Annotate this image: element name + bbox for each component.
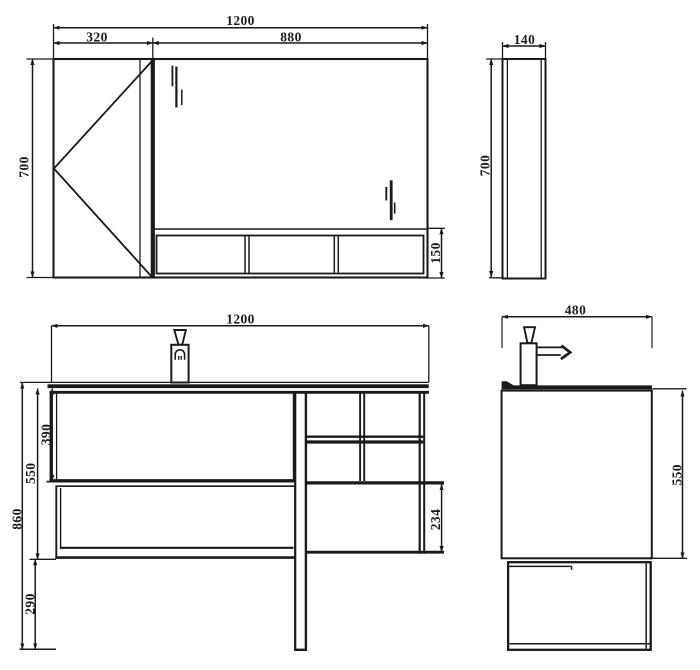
svg-text:1200: 1200 [226, 311, 255, 326]
svg-text:320: 320 [86, 29, 107, 44]
svg-text:880: 880 [280, 29, 301, 44]
svg-text:860: 860 [10, 508, 25, 529]
svg-text:700: 700 [16, 156, 31, 177]
svg-text:390: 390 [39, 424, 54, 445]
svg-text:480: 480 [565, 303, 586, 318]
svg-text:150: 150 [428, 242, 443, 263]
svg-text:550: 550 [23, 463, 38, 484]
svg-text:234: 234 [428, 509, 443, 530]
svg-text:1200: 1200 [226, 13, 255, 28]
svg-text:550: 550 [669, 464, 684, 485]
svg-text:290: 290 [23, 593, 38, 614]
svg-text:140: 140 [514, 32, 535, 47]
svg-text:700: 700 [478, 155, 493, 176]
